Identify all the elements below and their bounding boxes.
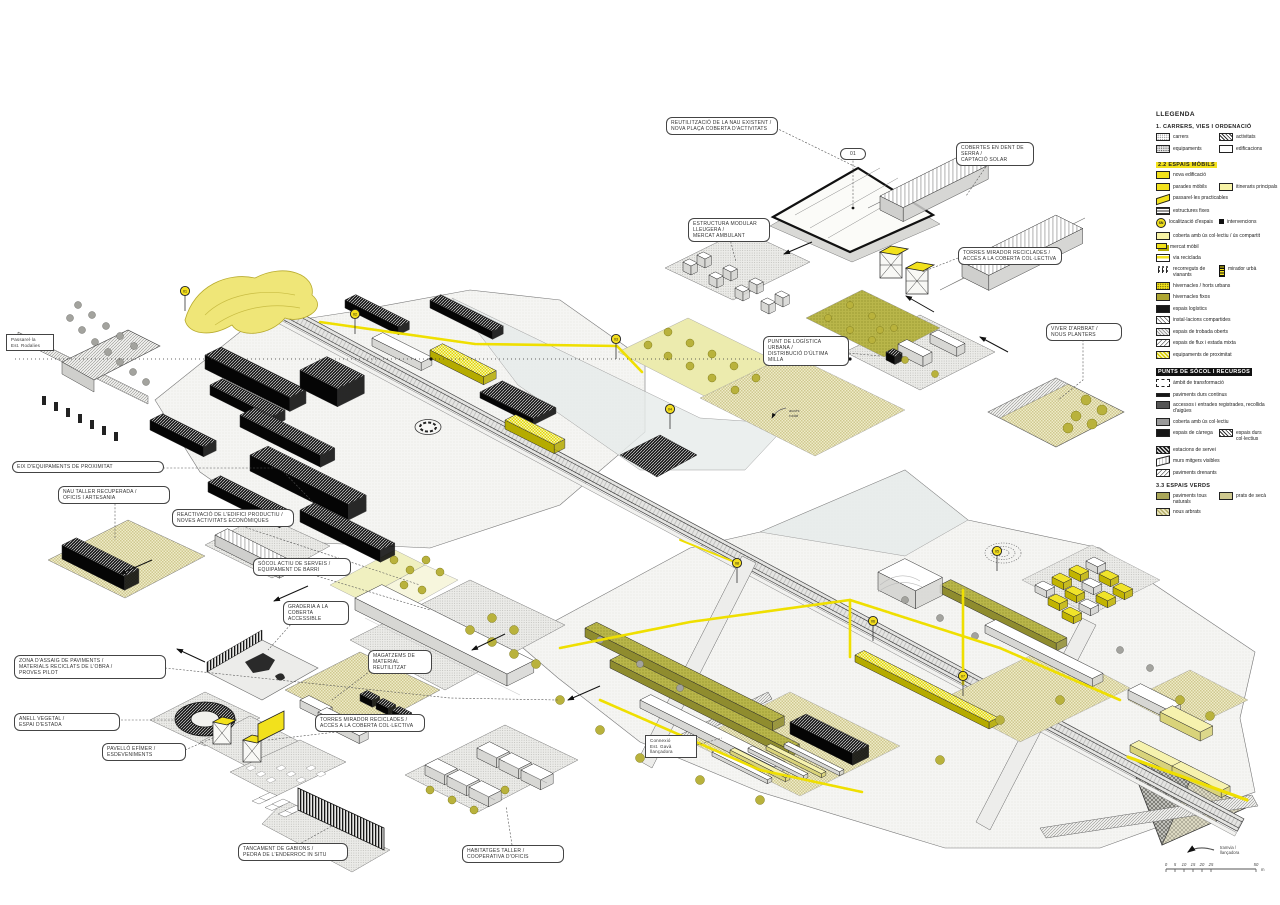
legend-swatch-checkerdark: [1219, 429, 1233, 437]
legend-row: passarel·les practicables: [1156, 194, 1278, 203]
callout-c11: GRADERIA A LACOBERTA ACCESSIBLE: [283, 601, 349, 625]
legend-item: paviments drenants: [1156, 469, 1278, 477]
legend-swatch-hatchdiag2: [1156, 339, 1170, 347]
tree: [130, 369, 137, 376]
masterplan-drawing: { "legend": { "title": "LLEGENDA", "sect…: [0, 0, 1280, 905]
tree: [448, 796, 456, 804]
legend-label: espais de flux i estada mixta: [1173, 339, 1236, 346]
tree: [731, 386, 739, 394]
scalebar-number: 15: [1191, 862, 1196, 867]
tree: [847, 302, 854, 309]
callout-c13: ZONA D'ASSAIG DE PAVIMENTS /MATERIALS RE…: [14, 655, 166, 679]
legend-label: intervencions: [1227, 218, 1256, 225]
legend-item: estructures fixes: [1156, 207, 1278, 215]
callout-c17: TANCAMENT DE GABIONS /PEDRA DE L'ENDERRO…: [238, 843, 348, 861]
legend-label: prats de secà: [1236, 492, 1266, 499]
legend-row: parades mòbilsitineraris principals: [1156, 183, 1278, 191]
pin-number: 01: [183, 289, 187, 293]
callout-line: PUNT DE LOGÍSTICA URBANA /: [768, 339, 844, 351]
legend-item: prats de secà: [1219, 492, 1278, 500]
legend-row: instal·lacions compartides: [1156, 316, 1278, 324]
legend-item: estacions de servei: [1156, 446, 1278, 454]
legend-swatch-black: [1156, 305, 1170, 313]
legend-row: paviments tous naturalsprats de secà: [1156, 492, 1278, 505]
tree: [644, 341, 652, 349]
tree: [67, 315, 74, 322]
legend-swatch-sn: SN: [1156, 218, 1166, 228]
tree: [686, 362, 694, 370]
legend-swatch-yellowdots2: [1156, 293, 1170, 301]
pin-number: 05: [995, 549, 999, 553]
callout-c16: TORRES MIRADOR RECICLADES /ACCÉS A LA CO…: [315, 714, 425, 732]
callout-c1: REUTILITZACIÓ DE LA NAU EXISTENT /NOVA P…: [666, 117, 778, 135]
legend-item: intervencions: [1219, 218, 1278, 225]
legend-row: SNlocalització d'espaisintervencions: [1156, 218, 1278, 228]
tree: [847, 327, 854, 334]
legend-item: espais de flux i estada mixta: [1156, 339, 1278, 347]
legend-label: coberta amb ús col·lectiu: [1173, 418, 1229, 425]
legend-label: recorreguts de vianants: [1173, 265, 1215, 278]
leader-line: [506, 806, 512, 845]
legend-item: espais de trobada oberts: [1156, 328, 1278, 336]
tree: [756, 796, 765, 805]
legend-label: passarel·les practicables: [1173, 194, 1228, 201]
legend-row: mercat mòbil: [1156, 243, 1278, 250]
legend-label: hivernacles / horts urbans: [1173, 282, 1230, 289]
callout-line: ESPAI D'ESTADA: [19, 722, 115, 728]
station-label-st2: ConnexióEst. Gavàllançadora: [645, 735, 697, 758]
legend-item: mercat mòbil: [1156, 243, 1278, 250]
legend-swatch-dotgrid: [1156, 133, 1170, 141]
legend-item: espais logístics: [1156, 305, 1278, 313]
tree: [677, 685, 684, 692]
callout-line: NOUS PLANTERS: [1051, 332, 1117, 338]
arch-pier: [54, 402, 58, 411]
station-line: llançadora: [650, 749, 692, 755]
station-line: Est. Rodalies: [11, 343, 49, 349]
legend-item: activitats: [1219, 133, 1278, 141]
legend-swatch-yellowline: [1156, 254, 1170, 262]
legend-label: estacions de servei: [1173, 446, 1216, 453]
scalebar-number: 5: [1174, 862, 1177, 867]
legend: LLEGENDA1. CARRERS, VIES I ORDENACIÓcarr…: [1156, 112, 1278, 520]
legend-row: equipamentsedificacions: [1156, 145, 1278, 153]
tree: [1071, 411, 1081, 421]
legend-section-title: 1. CARRERS, VIES I ORDENACIÓ: [1156, 124, 1278, 130]
legend-label: equipaments: [1173, 145, 1202, 152]
callout-line: ACCÉS A LA COBERTA COL·LECTIVA: [963, 256, 1057, 262]
legend-row: espais de càrregaespais durs col·lectius: [1156, 429, 1278, 442]
legend-label: activitats: [1236, 133, 1255, 140]
tree: [902, 597, 909, 604]
tree: [422, 556, 430, 564]
callout-c18: HABITATGES TALLER /COOPERATIVA D'OFICIS: [462, 845, 564, 863]
explode-arrow: [906, 296, 934, 312]
callout-c9: REACTIVACIÓ DE L'EDIFICI PRODUCTIU /NOVE…: [172, 509, 294, 527]
tree: [637, 661, 644, 668]
legend-swatch-checkerdark: [1219, 133, 1233, 141]
legend-item: paviments tous naturals: [1156, 492, 1215, 505]
callout-line: EIX D'EQUIPAMENTS DE PROXIMITAT: [17, 464, 159, 470]
tree: [1063, 423, 1073, 433]
tree: [501, 786, 509, 794]
legend-item: paviments durs continus: [1156, 391, 1278, 398]
legend-label: coberta amb ús col·lectiu / ús compartit: [1173, 232, 1260, 239]
explode-arrow: [274, 586, 308, 601]
legend-row: estacions de servei: [1156, 446, 1278, 454]
legend-swatch-hatchdiag2: [1156, 469, 1170, 477]
callout-c2: ESTRUCTURA MODULAR LLEUGERA /MERCAT AMBU…: [688, 218, 770, 242]
legend-label: instal·lacions compartides: [1173, 316, 1231, 323]
legend-label: mercat mòbil: [1170, 243, 1199, 250]
legend-swatch-graymid: [1156, 418, 1170, 426]
tree: [400, 581, 408, 589]
tree: [869, 337, 876, 344]
scalebar-unit: m: [1261, 867, 1265, 872]
callout-line: NOVES ACTIVITATS ECONÒMIQUES: [177, 518, 289, 524]
legend-row: paviments durs continus: [1156, 391, 1278, 398]
legend-item: hivernacles fixos: [1156, 293, 1278, 301]
legend-swatch-stack: [1156, 455, 1170, 466]
legend-section-title: 2.2 ESPAIS MÒBILS: [1156, 162, 1217, 168]
legend-label: parades mòbils: [1173, 183, 1207, 190]
legend-item: via reciclada: [1156, 254, 1278, 262]
shuttle-arrow: [1188, 848, 1214, 852]
tree: [117, 359, 124, 366]
callout-c7: EIX D'EQUIPAMENTS DE PROXIMITAT: [12, 461, 164, 473]
legend-label: edificacions: [1236, 145, 1262, 152]
legend-label: espais de trobada oberts: [1173, 328, 1228, 335]
tree: [686, 339, 694, 347]
legend-label: espais de càrrega: [1173, 429, 1213, 436]
callout-line: PEDRA DE L'ENDERROC IN SITU: [243, 852, 343, 858]
legend-row: coberta amb ús col·lectiu: [1156, 418, 1278, 426]
scalebar-number: 0: [1165, 862, 1168, 867]
callout-c6: VIVER D'ARBRAT /NOUS PLANTERS: [1046, 323, 1122, 341]
callout-c14: ANELL VEGETAL /ESPAI D'ESTADA: [14, 713, 120, 731]
legend-item: itineraris principals: [1219, 183, 1278, 191]
station-label-st1: Passarel·laEst. Rodalies: [6, 334, 54, 351]
pin-number: 06: [871, 619, 875, 623]
callout-c12: MAGATZEMS DEMATERIAL REUTILITZAT: [368, 650, 432, 674]
legend-item: mirador urbà: [1219, 265, 1278, 277]
access-note-line: rodat: [789, 414, 799, 419]
tree: [752, 374, 760, 382]
tree: [532, 660, 541, 669]
legend-swatch-olive: [1156, 492, 1170, 500]
legend-label: paviments durs continus: [1173, 391, 1227, 398]
legend-item: passarel·les practicables: [1156, 194, 1278, 203]
tree: [636, 754, 645, 763]
callout-c3: COBERTES EN DENT DE SERRA /CAPTACIÓ SOLA…: [956, 142, 1034, 166]
tree: [1176, 696, 1185, 705]
legend-row: coberta amb ús col·lectiu / ús compartit: [1156, 232, 1278, 240]
leader-node: [852, 207, 855, 210]
legend-swatch-khakiicon: [1219, 492, 1233, 500]
scalebar-number: 20: [1199, 862, 1205, 867]
tree: [708, 350, 716, 358]
tree: [937, 615, 944, 622]
tree: [131, 343, 138, 350]
access-note: accésrodat: [789, 409, 799, 418]
legend-label: via reciclada: [1173, 254, 1201, 261]
tree: [92, 339, 99, 346]
legend-item: espais durs col·lectius: [1219, 429, 1278, 442]
scalebar-number: 10: [1182, 862, 1187, 867]
legend-row: carrersactivitats: [1156, 133, 1278, 141]
callout-line: CAPTACIÓ SOLAR: [961, 157, 1029, 163]
legend-item: edificacions: [1219, 145, 1278, 153]
legend-item: equipaments de proximitat: [1156, 351, 1278, 359]
legend-swatch-tower: [1219, 265, 1225, 277]
arch-pier: [78, 414, 82, 423]
legend-label: localització d'espais: [1169, 218, 1213, 225]
explode-arrow: [784, 242, 812, 254]
tree: [89, 312, 96, 319]
legend-item: accessos i entrades registrades, recolli…: [1156, 401, 1278, 414]
tree: [996, 716, 1005, 725]
legend-item: recorreguts de vianants: [1156, 265, 1215, 278]
tree: [105, 349, 112, 356]
tree: [1206, 712, 1215, 721]
legend-swatch-lines: [1156, 207, 1170, 215]
callout-line: COBERTES EN DENT DE SERRA /: [961, 145, 1029, 157]
tree: [730, 362, 738, 370]
tree: [470, 806, 478, 814]
tree: [488, 614, 497, 623]
legend-swatch-hatchdiag: [1156, 316, 1170, 324]
tree: [510, 650, 519, 659]
tree: [932, 371, 939, 378]
tree: [1056, 696, 1065, 705]
arch-pier: [114, 432, 118, 441]
callout-line: ESTRUCTURA MODULAR LLEUGERA /: [693, 221, 765, 233]
legend-label: nova edificació: [1173, 171, 1206, 178]
shuttle-label: tramvia /llançadora: [1220, 845, 1240, 855]
callout-c10: SÒCOL ACTIU DE SERVEIS /EQUIPAMENT DE BA…: [253, 558, 351, 576]
legend-swatch-black: [1156, 429, 1170, 437]
roundabout: [415, 420, 441, 435]
tree: [390, 556, 398, 564]
tree: [117, 333, 124, 340]
tree: [825, 315, 832, 322]
callout-line: COOPERATIVA D'OFICIS: [467, 854, 559, 860]
tree: [103, 323, 110, 330]
legend-label: paviments tous naturals: [1173, 492, 1215, 505]
legend-row: paviments drenants: [1156, 469, 1278, 477]
pin-number: 02: [353, 312, 357, 316]
legend-label: carrers: [1173, 133, 1189, 140]
callout-line: MATERIAL REUTILITZAT: [373, 659, 427, 671]
tree: [869, 313, 876, 320]
legend-row: murs mitgers visibles: [1156, 457, 1278, 465]
legend-item: instal·lacions compartides: [1156, 316, 1278, 324]
legend-label: hivernacles fixos: [1173, 293, 1210, 300]
callout-c4: TORRES MIRADOR RECICLADES /ACCÉS A LA CO…: [958, 247, 1062, 265]
legend-row: espais de trobada oberts: [1156, 328, 1278, 336]
tree: [877, 327, 884, 334]
callout-line: NOVA PLAÇA COBERTA D'ACTIVITATS: [671, 126, 773, 132]
legend-item: nous arbrats: [1156, 508, 1278, 516]
tree: [902, 357, 909, 364]
tree: [708, 374, 716, 382]
callout-line: DISTRIBUCIÓ D'ÚLTIMA MILLA: [768, 351, 844, 363]
legend-item: coberta amb ús col·lectiu / ús compartit: [1156, 232, 1278, 240]
explode-arrow: [177, 649, 205, 662]
callout-line: ACCÉS A LA COBERTA COL·LECTIVA: [320, 723, 420, 729]
tree: [466, 626, 475, 635]
legend-row: hivernacles / horts urbans: [1156, 282, 1278, 290]
callout-c8: NAU TALLER RECUPERADA /OFICIS I ARTESANI…: [58, 486, 170, 504]
tree: [510, 626, 519, 635]
legend-swatch-khakicheck: [1156, 508, 1170, 516]
legend-label: itineraris principals: [1236, 183, 1277, 190]
legend-swatch-hatchmix: [1156, 328, 1170, 336]
legend-item: equipaments: [1156, 145, 1215, 153]
legend-item: coberta amb ús col·lectiu: [1156, 418, 1278, 426]
legend-item: SNlocalització d'espais: [1156, 218, 1215, 228]
legend-swatch-blackbar: [1156, 393, 1170, 397]
legend-row: estructures fixes: [1156, 207, 1278, 215]
legend-row: via reciclada: [1156, 254, 1278, 262]
tree: [418, 586, 426, 594]
callout-line: COBERTA ACCESSIBLE: [288, 610, 344, 622]
scalebar-number: 50: [1254, 862, 1259, 867]
legend-label: mirador urbà: [1228, 265, 1256, 272]
legend-swatch-dashed: [1156, 379, 1170, 387]
legend-label: accessos i entrades registrades, recolli…: [1173, 401, 1278, 414]
legend-item: espais de càrrega: [1156, 429, 1215, 437]
tree: [406, 566, 414, 574]
legend-swatch-yellow: [1156, 183, 1170, 191]
legend-swatch-yellowbold: [1156, 171, 1170, 179]
callout-line: EQUIPAMENT DE BARRI: [258, 567, 346, 573]
tree: [143, 379, 150, 386]
legend-swatch-yellowcheck: [1156, 351, 1170, 359]
legend-row: espais logístics: [1156, 305, 1278, 313]
legend-row: equipaments de proximitat: [1156, 351, 1278, 359]
legend-section-title: 3.3 ESPAIS VERDS: [1156, 483, 1278, 489]
arch-pier: [66, 408, 70, 417]
legend-swatch-parayellow: [1156, 194, 1170, 206]
tree: [436, 568, 444, 576]
pin-number: 07: [961, 674, 965, 678]
callout-line: MERCAT AMBULANT: [693, 233, 765, 239]
legend-swatch-minibox: [1156, 243, 1167, 249]
tree: [79, 327, 86, 334]
legend-item: àmbit de transformació: [1156, 379, 1278, 387]
legend-row: recorreguts de vianantsmirador urbà: [1156, 265, 1278, 278]
legend-swatch-yellowpale2: [1156, 232, 1170, 240]
legend-row: nova edificació: [1156, 171, 1278, 179]
arch-pier: [102, 426, 106, 435]
datum-node: [429, 357, 432, 360]
tree: [1147, 665, 1154, 672]
legend-row: accessos i entrades registrades, recolli…: [1156, 401, 1278, 414]
tree: [1087, 419, 1097, 429]
callout-c5: PUNT DE LOGÍSTICA URBANA /DISTRIBUCIÓ D'…: [763, 336, 849, 366]
axonometric-masterplan: 0102030405060708tramvia /llançadora05101…: [0, 0, 1280, 905]
legend-row: hivernacles fixos: [1156, 293, 1278, 301]
legend-label: espais durs col·lectius: [1236, 429, 1278, 442]
legend-label: equipaments de proximitat: [1173, 351, 1232, 358]
tree: [696, 776, 705, 785]
pin-number: 04: [668, 407, 672, 411]
tree: [664, 328, 672, 336]
pin-number: 08: [735, 561, 739, 565]
legend-item: murs mitgers visibles: [1156, 457, 1278, 465]
tree: [1117, 647, 1124, 654]
callout-line: ESDEVENIMENTS: [107, 752, 181, 758]
legend-title: LLEGENDA: [1156, 112, 1278, 118]
arch-pier: [90, 420, 94, 429]
legend-swatch-graydark: [1156, 401, 1170, 409]
tree: [891, 325, 898, 332]
legend-swatch-checkerdense: [1156, 446, 1170, 454]
legend-label: nous arbrats: [1173, 508, 1201, 515]
tree: [1097, 405, 1107, 415]
legend-swatch-densedot: [1156, 145, 1170, 153]
pin-number: 03: [614, 337, 618, 341]
legend-section-title: PUNTS DE SÒCOL I RECURSOS: [1156, 368, 1252, 376]
scalebar-number: 25: [1208, 862, 1214, 867]
legend-swatch-dot: [1219, 219, 1224, 224]
legend-label: àmbit de transformació: [1173, 379, 1224, 386]
plaza-tag: 01: [840, 148, 866, 160]
legend-row: àmbit de transformació: [1156, 379, 1278, 387]
callout-c15: PAVELLÓ EFÍMER /ESDEVENIMENTS: [102, 743, 186, 761]
callout-line: PROVES PILOT: [19, 670, 161, 676]
legend-item: hivernacles / horts urbans: [1156, 282, 1278, 290]
tree: [1081, 395, 1091, 405]
callout-line: OFICIS I ARTESANIA: [63, 495, 165, 501]
legend-row: espais de flux i estada mixta: [1156, 339, 1278, 347]
legend-label: espais logístics: [1173, 305, 1207, 312]
tree: [426, 786, 434, 794]
legend-item: carrers: [1156, 133, 1215, 141]
legend-swatch-figures: [1156, 265, 1170, 273]
legend-swatch-yellowdots: [1156, 282, 1170, 290]
tree: [75, 302, 82, 309]
tree: [596, 726, 605, 735]
tree: [936, 756, 945, 765]
legend-swatch-white: [1219, 145, 1233, 153]
legend-label: estructures fixes: [1173, 207, 1209, 214]
legend-item: parades mòbils: [1156, 183, 1215, 191]
legend-row: nous arbrats: [1156, 508, 1278, 516]
legend-label: murs mitgers visibles: [1173, 457, 1220, 464]
legend-item: nova edificació: [1156, 171, 1278, 179]
legend-swatch-yellowpale: [1219, 183, 1233, 191]
legend-label: paviments drenants: [1173, 469, 1217, 476]
arch-pier: [42, 396, 46, 405]
